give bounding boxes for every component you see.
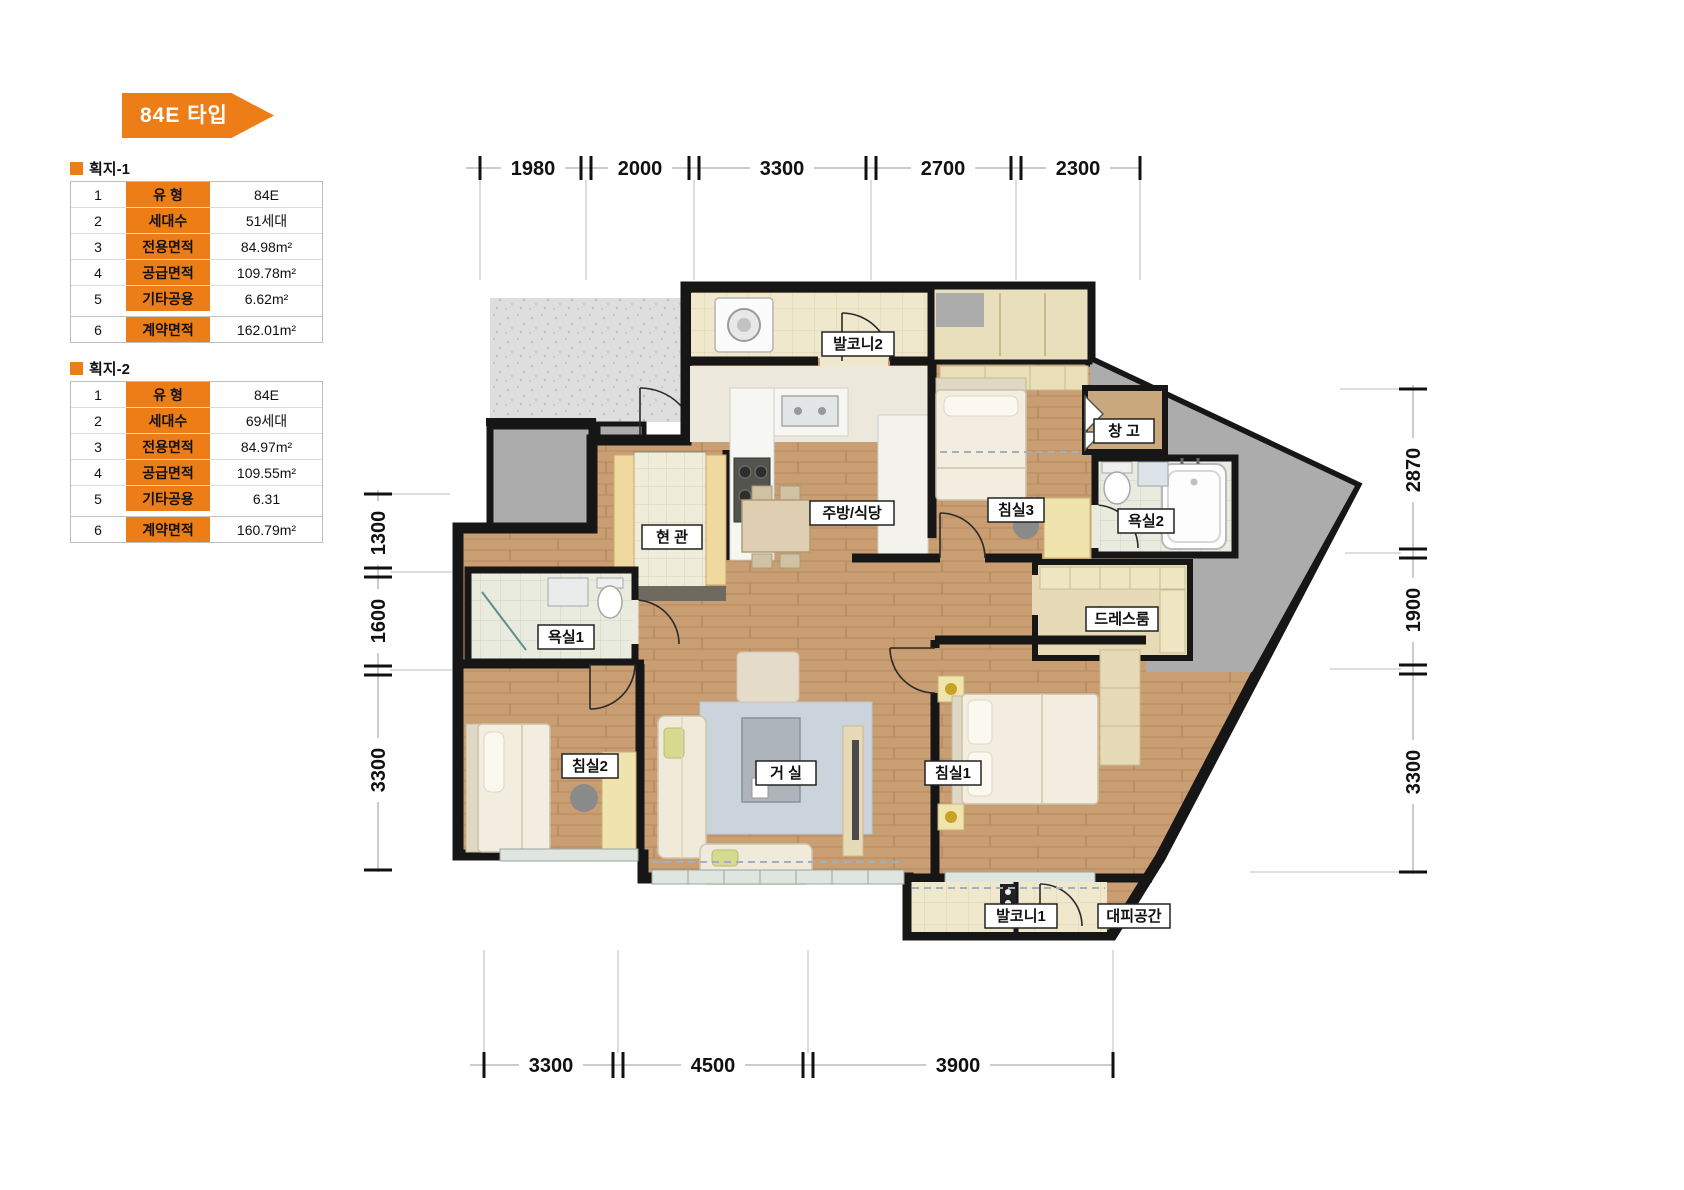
label-balcony2: 발코니2 <box>822 332 894 356</box>
toilet-icon <box>597 578 623 618</box>
label-living: 거 실 <box>756 761 816 785</box>
svg-text:욕실1: 욕실1 <box>548 629 584 646</box>
pouf <box>737 652 799 702</box>
desk-icon <box>1044 498 1090 558</box>
label-bedroom2: 침실2 <box>562 754 618 778</box>
svg-text:거 실: 거 실 <box>770 765 802 782</box>
window <box>652 870 904 884</box>
svg-text:발코니1: 발코니1 <box>996 908 1046 925</box>
svg-text:발코니2: 발코니2 <box>833 336 883 353</box>
label-dressroom: 드레스룸 <box>1086 607 1158 631</box>
svg-text:2700: 2700 <box>921 158 966 180</box>
svg-text:1300: 1300 <box>368 511 390 556</box>
label-balcony1: 발코니1 <box>985 904 1057 928</box>
bed3-icon <box>936 378 1026 500</box>
dimension-top: 1980 2000 3300 2700 2300 <box>466 156 1140 280</box>
svg-text:3900: 3900 <box>936 1055 981 1077</box>
toilet-icon <box>1102 462 1132 504</box>
tv-icon <box>852 740 859 840</box>
top-utility-block <box>930 287 1090 362</box>
bed2-icon <box>466 724 550 852</box>
label-shelter: 대피공간 <box>1098 904 1170 928</box>
svg-text:3300: 3300 <box>368 748 390 793</box>
sink-icon <box>1138 462 1168 486</box>
dimension-bottom: 3300 4500 3900 <box>470 950 1113 1078</box>
bed1-icon <box>952 694 1098 804</box>
sink-icon <box>548 578 588 606</box>
label-kitchen-dining: 주방/식당 <box>810 501 894 525</box>
svg-text:1600: 1600 <box>368 599 390 644</box>
label-bedroom1: 침실1 <box>925 761 981 785</box>
dimension-left: 1300 1600 3300 <box>364 490 452 872</box>
washer-icon <box>715 298 773 352</box>
shoe-closet <box>614 455 634 585</box>
floor-plan-page: 84E 타입 획지-1 1유 형84E 2세대수51세대 3전용면적84.98m… <box>0 0 1684 1190</box>
svg-text:침실3: 침실3 <box>998 502 1034 519</box>
shoe-closet <box>706 455 726 585</box>
svg-text:1980: 1980 <box>511 158 556 180</box>
window <box>500 849 638 861</box>
svg-text:1900: 1900 <box>1403 588 1425 633</box>
floor-plan: 발코니2 주방/식당 침실3 창 고 욕실2 드레스룸 현 관 욕실1 침실2 … <box>0 0 1684 1190</box>
svg-text:2870: 2870 <box>1403 448 1425 493</box>
label-bedroom3: 침실3 <box>988 498 1044 522</box>
svg-text:2000: 2000 <box>618 158 663 180</box>
bathtub-icon <box>1162 458 1226 549</box>
wardrobe <box>1100 650 1140 765</box>
svg-text:창 고: 창 고 <box>1108 423 1140 440</box>
svg-text:욕실2: 욕실2 <box>1128 513 1164 530</box>
svg-text:현 관: 현 관 <box>656 529 688 546</box>
svg-text:3300: 3300 <box>1403 750 1425 795</box>
svg-text:주방/식당: 주방/식당 <box>822 504 882 522</box>
coffee-table-icon <box>742 718 800 802</box>
label-storage: 창 고 <box>1094 419 1154 443</box>
label-entrance: 현 관 <box>642 525 702 549</box>
svg-text:3300: 3300 <box>760 158 805 180</box>
kitchen-sink-icon <box>782 396 838 426</box>
svg-text:드레스룸: 드레스룸 <box>1094 611 1149 628</box>
bathroom2-room <box>1095 458 1235 555</box>
svg-text:침실2: 침실2 <box>572 758 608 775</box>
svg-text:3300: 3300 <box>529 1055 574 1077</box>
svg-text:침실1: 침실1 <box>935 765 971 782</box>
svg-text:대피공간: 대피공간 <box>1106 908 1161 925</box>
label-bathroom2: 욕실2 <box>1118 509 1174 533</box>
kitchen-island <box>878 415 928 560</box>
chair-icon <box>570 784 598 812</box>
svg-text:2300: 2300 <box>1056 158 1101 180</box>
label-bathroom1: 욕실1 <box>538 625 594 649</box>
svg-text:4500: 4500 <box>691 1055 736 1077</box>
